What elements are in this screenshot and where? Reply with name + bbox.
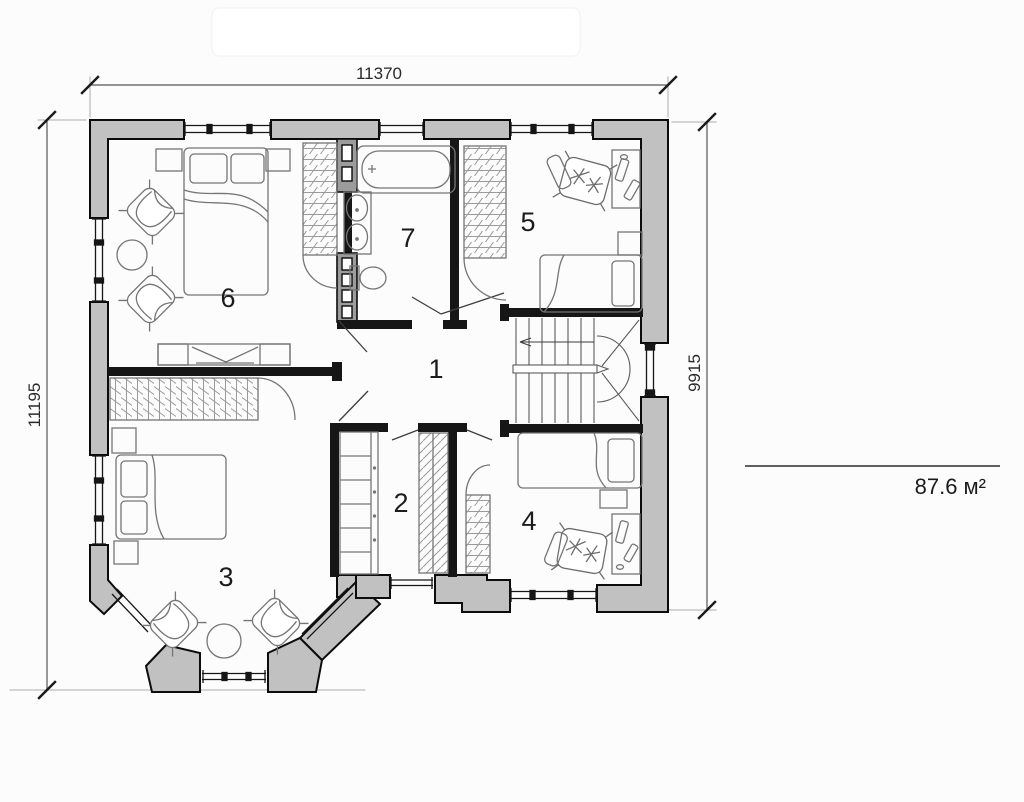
- tv-stand: [158, 344, 290, 365]
- area-callout: 87.6 м²: [745, 466, 1000, 499]
- room-label-closet: 2: [393, 488, 408, 518]
- room3-furniture: [110, 378, 309, 658]
- round-table: [117, 240, 147, 270]
- plumbing-shaft: [337, 139, 357, 322]
- closet: [466, 465, 490, 573]
- bathtub: [357, 146, 455, 193]
- wardrobe: [303, 143, 337, 288]
- office-chair: [553, 151, 618, 211]
- room-label-bedroom-left: 3: [218, 562, 233, 592]
- nightstand: [112, 428, 136, 453]
- single-bed: [540, 255, 642, 312]
- floor-plan-drawing: 11370 11195 9915 87.6 м²: [0, 0, 1024, 802]
- single-bed: [518, 433, 642, 488]
- room-label-bathroom: 7: [400, 223, 415, 253]
- double-bed: [116, 455, 226, 539]
- double-bed: [184, 148, 268, 295]
- room-label-hall: 1: [428, 354, 443, 384]
- area-label: 87.6 м²: [915, 474, 986, 499]
- round-table: [207, 624, 241, 658]
- room-label-room-tr: 5: [520, 207, 535, 237]
- floor-plan-page: 11370 11195 9915 87.6 м²: [0, 0, 1024, 802]
- dimension-right-label: 9915: [685, 354, 704, 392]
- wardrobe: [110, 378, 295, 420]
- dimension-top-label: 11370: [356, 64, 402, 83]
- nightstand: [114, 541, 138, 564]
- room5-furniture: [464, 146, 642, 312]
- dimension-top: 11370: [82, 64, 676, 117]
- office-chair: [551, 523, 613, 580]
- armchair: [118, 179, 183, 244]
- room4-furniture: [466, 433, 642, 579]
- desk: [612, 514, 640, 574]
- nightstand: [618, 232, 642, 255]
- armchair: [141, 591, 206, 656]
- room-label-bedroom-tl: 6: [220, 283, 235, 313]
- stairs: [513, 318, 639, 423]
- shelving: [340, 432, 378, 574]
- blank-watermark-box: [212, 8, 580, 56]
- room6-furniture: [117, 143, 337, 365]
- nightstand: [156, 149, 182, 171]
- closet: [464, 146, 506, 300]
- room-label-room-br: 4: [521, 506, 536, 536]
- bathroom-fixtures: [344, 146, 455, 290]
- nightstand: [266, 149, 290, 171]
- hanging-rail: [419, 433, 448, 573]
- desk: [612, 150, 640, 208]
- nightstand: [600, 490, 627, 508]
- dimension-left-label: 11195: [25, 383, 44, 428]
- door-marks: [339, 293, 504, 440]
- armchair: [118, 266, 183, 331]
